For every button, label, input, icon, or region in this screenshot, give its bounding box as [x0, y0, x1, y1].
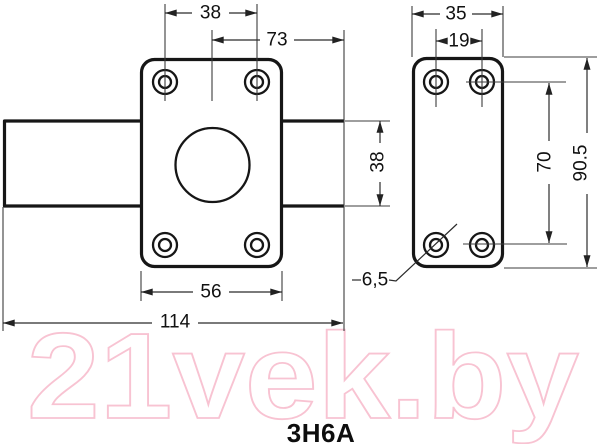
dim-label-114: 114 — [160, 312, 191, 333]
model-title: 3H6A — [287, 418, 355, 444]
dim-side-hole-spacing-70: 70 — [535, 83, 556, 243]
dim-label-90-5: 90.5 — [571, 145, 592, 182]
dim-front-plate-width-56: 56 — [141, 282, 282, 303]
front-plate-screw-holes — [153, 70, 269, 257]
dim-label-56: 56 — [200, 282, 221, 303]
front-view — [5, 60, 345, 267]
dim-label-35: 35 — [445, 4, 466, 25]
dim-label-38-right: 38 — [368, 151, 389, 172]
dim-label-73: 73 — [266, 30, 287, 51]
dim-label-6-5: 6,5 — [362, 270, 388, 291]
dim-side-plate-height-90-5: 90.5 — [571, 58, 592, 267]
dim-shaft-height-38: 38 — [368, 121, 389, 206]
side-view — [414, 59, 503, 267]
dim-front-center-to-shaft-end-73: 73 — [212, 30, 344, 51]
dim-label-70: 70 — [535, 151, 556, 172]
dim-side-hole-spacing-19: 19 — [436, 31, 482, 52]
dim-label-19: 19 — [448, 31, 469, 52]
side-plate-screw-holes — [424, 70, 494, 257]
dim-side-plate-width-35: 35 — [412, 4, 503, 25]
cylinder-hole — [176, 128, 250, 202]
technical-drawing: 21vek.by — [0, 0, 600, 444]
dim-front-hole-spacing-38: 38 — [165, 3, 257, 24]
dim-label-38-top: 38 — [200, 3, 221, 24]
bolt-shaft-left — [5, 121, 142, 206]
lock-technical-drawing-page: 21vek.by — [0, 0, 600, 444]
extension-lines — [3, 4, 597, 331]
